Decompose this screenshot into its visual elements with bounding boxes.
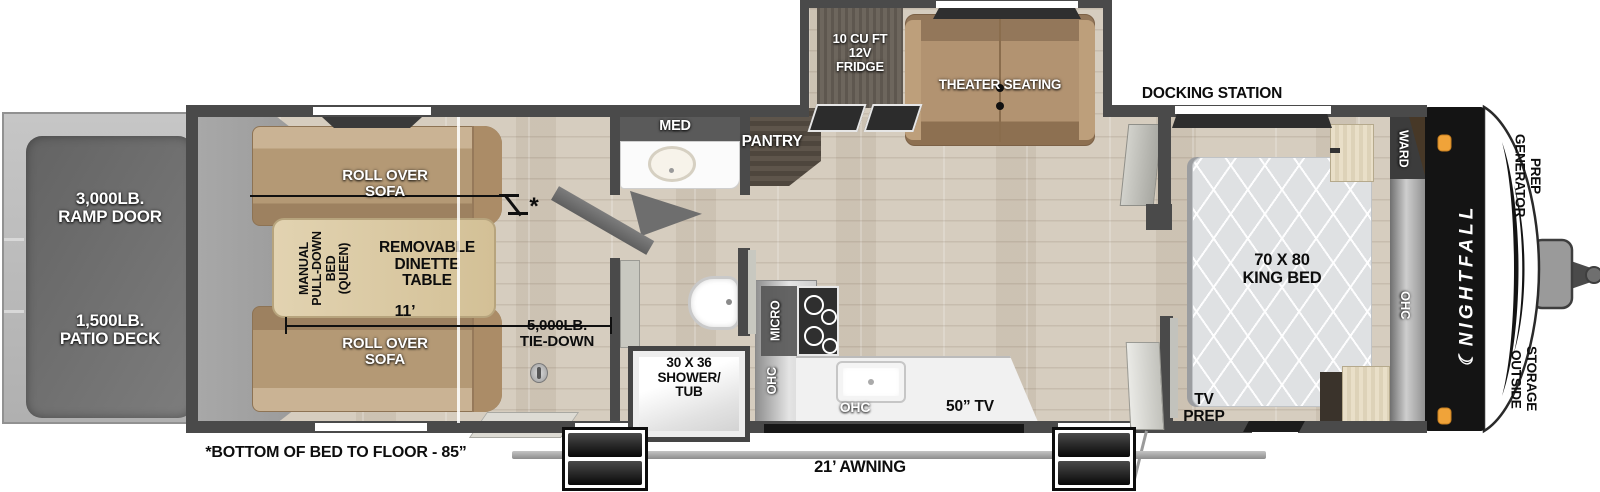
linen-panel [620, 260, 640, 348]
kitchen-sink-drain [868, 379, 874, 385]
toilet-flush [726, 299, 732, 305]
theater-cupholder [996, 102, 1004, 110]
bedroom-window-sill [1175, 106, 1331, 114]
roll-over-sofa-bottom-label: ROLL OVER SOFA [300, 336, 470, 368]
bath-wall-right [740, 115, 750, 195]
med-sink-drain [669, 168, 674, 173]
bedroom-partition-stub [1146, 204, 1172, 230]
bed-height-note: *BOTTOM OF BED TO FLOOR - 85” [188, 444, 484, 461]
hitch-ball-icon [1586, 267, 1600, 283]
slide-divider [457, 117, 460, 423]
dinette-label: REMOVABLE DINETTE TABLE [352, 240, 502, 290]
ohc-upper-label: OHC [758, 356, 788, 406]
med-sink [648, 146, 696, 182]
pantry-label: PANTRY [722, 134, 822, 151]
crescent-icon: ☾ [1457, 346, 1478, 367]
cabinet-bottom-dark [1320, 372, 1342, 422]
theater-label: THEATER SEATING [915, 78, 1085, 93]
wall-top-garage [186, 105, 804, 117]
tv-prep-label: TV PREP [1168, 392, 1240, 425]
nightstand-top [1330, 124, 1374, 182]
burner-icon [821, 309, 837, 325]
slide-window-shade [933, 8, 1081, 19]
counter-by-fridge [807, 104, 866, 132]
entry-steps-right [1052, 427, 1136, 491]
window-garage-top [313, 107, 431, 115]
tv-50-label: 50” TV [928, 399, 1012, 416]
step-tread [1058, 461, 1130, 485]
nightfall-logo: ☾NIGHTFALL [1434, 165, 1478, 405]
generator-prep-label: GENERATOR PREP [1512, 116, 1556, 236]
burner-icon [804, 326, 824, 346]
ward-label: WARD [1396, 122, 1416, 176]
ramp-frame-notch [4, 310, 24, 313]
counter-by-fridge [863, 104, 922, 132]
toilet-wall-face [748, 250, 756, 334]
toilet [688, 276, 740, 330]
slide-wall-right [1103, 0, 1112, 117]
dim-tick [285, 317, 287, 334]
slide-wall-left [800, 0, 809, 117]
burner-icon [804, 295, 824, 315]
ramp-door-panel [26, 136, 194, 418]
rv-floorplan: 3,000LB. RAMP DOOR 1,500LB. PATIO DECK 1… [0, 0, 1600, 492]
tie-down-anchor-slot [537, 367, 541, 379]
roll-over-sofa-top-label: ROLL OVER SOFA [300, 168, 470, 200]
tie-down-label: 5,000LB. TIE-DOWN [495, 318, 619, 350]
ohc-counter-label: OHC [820, 400, 890, 415]
wall-rear [186, 105, 198, 433]
king-bed-label: 70 X 80 KING BED [1202, 252, 1362, 288]
shower-label: 30 X 36 SHOWER/ TUB [632, 356, 746, 400]
entry-door-leaf [1126, 342, 1165, 430]
marker-light-icon [1438, 408, 1451, 424]
stove [797, 286, 839, 356]
brand-text: NIGHTFALL [1457, 203, 1478, 346]
micro-label: MICRO [761, 288, 791, 354]
tv-50 [764, 424, 1024, 433]
marker-light-icon [1438, 135, 1451, 151]
nightstand-top-handle [1330, 148, 1340, 153]
roll-over-sofa-top-arm [472, 126, 502, 226]
bedroom-window-bottom-sill [1252, 432, 1298, 436]
med-label: MED [640, 119, 710, 135]
ramp-door-label: 3,000LB. RAMP DOOR [26, 190, 194, 227]
bedroom-window-top [1172, 114, 1332, 128]
ramp-frame-notch [4, 238, 24, 241]
bedroom-window-bottom [1243, 421, 1305, 432]
patio-deck-label: 1,500LB. PATIO DECK [26, 312, 194, 349]
fridge-label: 10 CU FT 12V FRIDGE [817, 32, 903, 74]
asterisk-leader-serif [499, 194, 519, 197]
bath-wall-left [610, 115, 620, 195]
asterisk-mark: * [522, 194, 546, 220]
window-garage-bottom [315, 423, 427, 431]
vent-garage-top [322, 117, 422, 128]
docking-station-label: DOCKING STATION [1127, 86, 1297, 103]
outside-storage-label: OUTSIDE STORAGE [1508, 320, 1552, 438]
awning-label: 21’ AWNING [770, 459, 950, 477]
ohc-bed-label: OHC [1398, 280, 1418, 330]
entry-steps-left [562, 427, 648, 491]
step-tread [1058, 433, 1130, 457]
step-tread [568, 433, 642, 457]
burner-icon [822, 338, 838, 354]
nightstand-bottom [1342, 366, 1390, 426]
step-tread [568, 461, 642, 485]
bedroom-partition-top [1158, 117, 1171, 207]
slide-window [936, 1, 1078, 8]
dim-11ft-label: 11’ [380, 303, 430, 320]
